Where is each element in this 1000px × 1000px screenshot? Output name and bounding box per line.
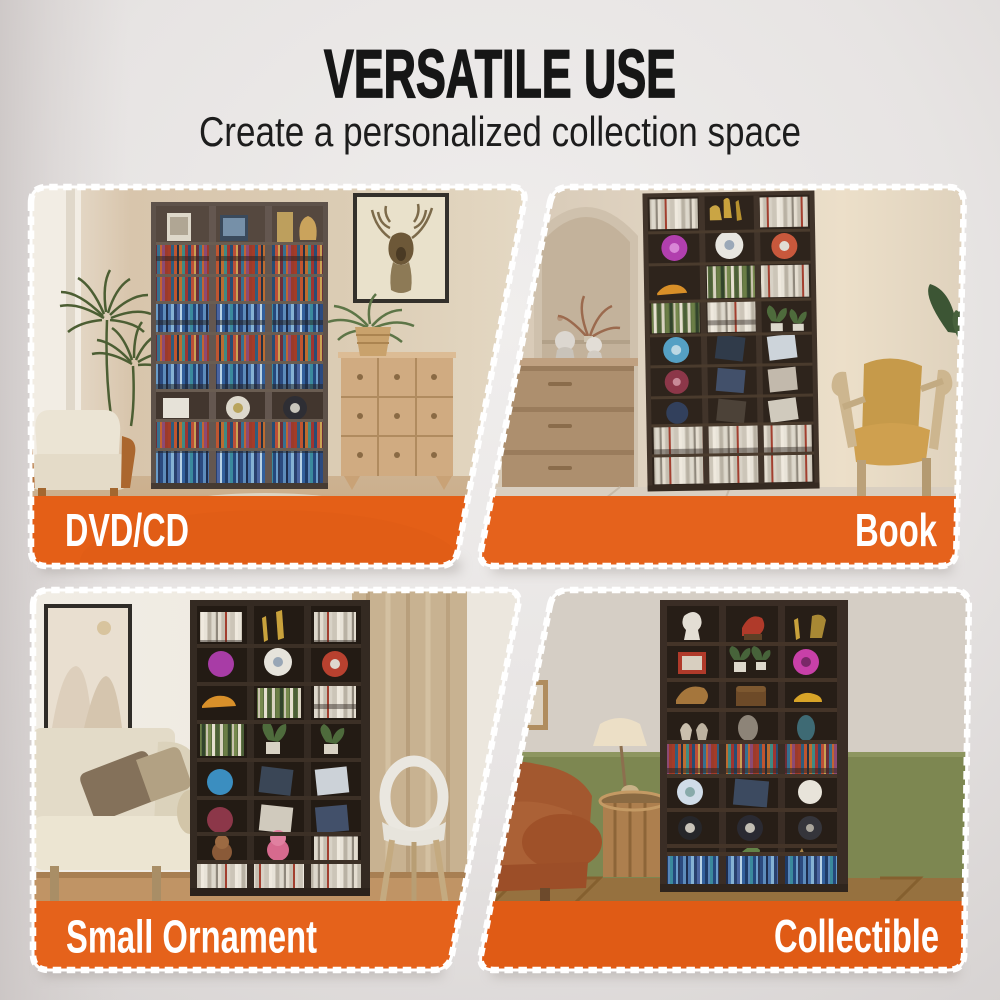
svg-text:Create a personalized collecti: Create a personalized collection space <box>199 108 801 155</box>
svg-text:VERSATILE USE: VERSATILE USE <box>324 36 676 112</box>
svg-text:DVD/CD: DVD/CD <box>65 504 189 556</box>
svg-text:Book: Book <box>855 504 937 556</box>
svg-text:Collectible: Collectible <box>774 910 939 962</box>
svg-text:Small Ornament: Small Ornament <box>66 911 317 963</box>
